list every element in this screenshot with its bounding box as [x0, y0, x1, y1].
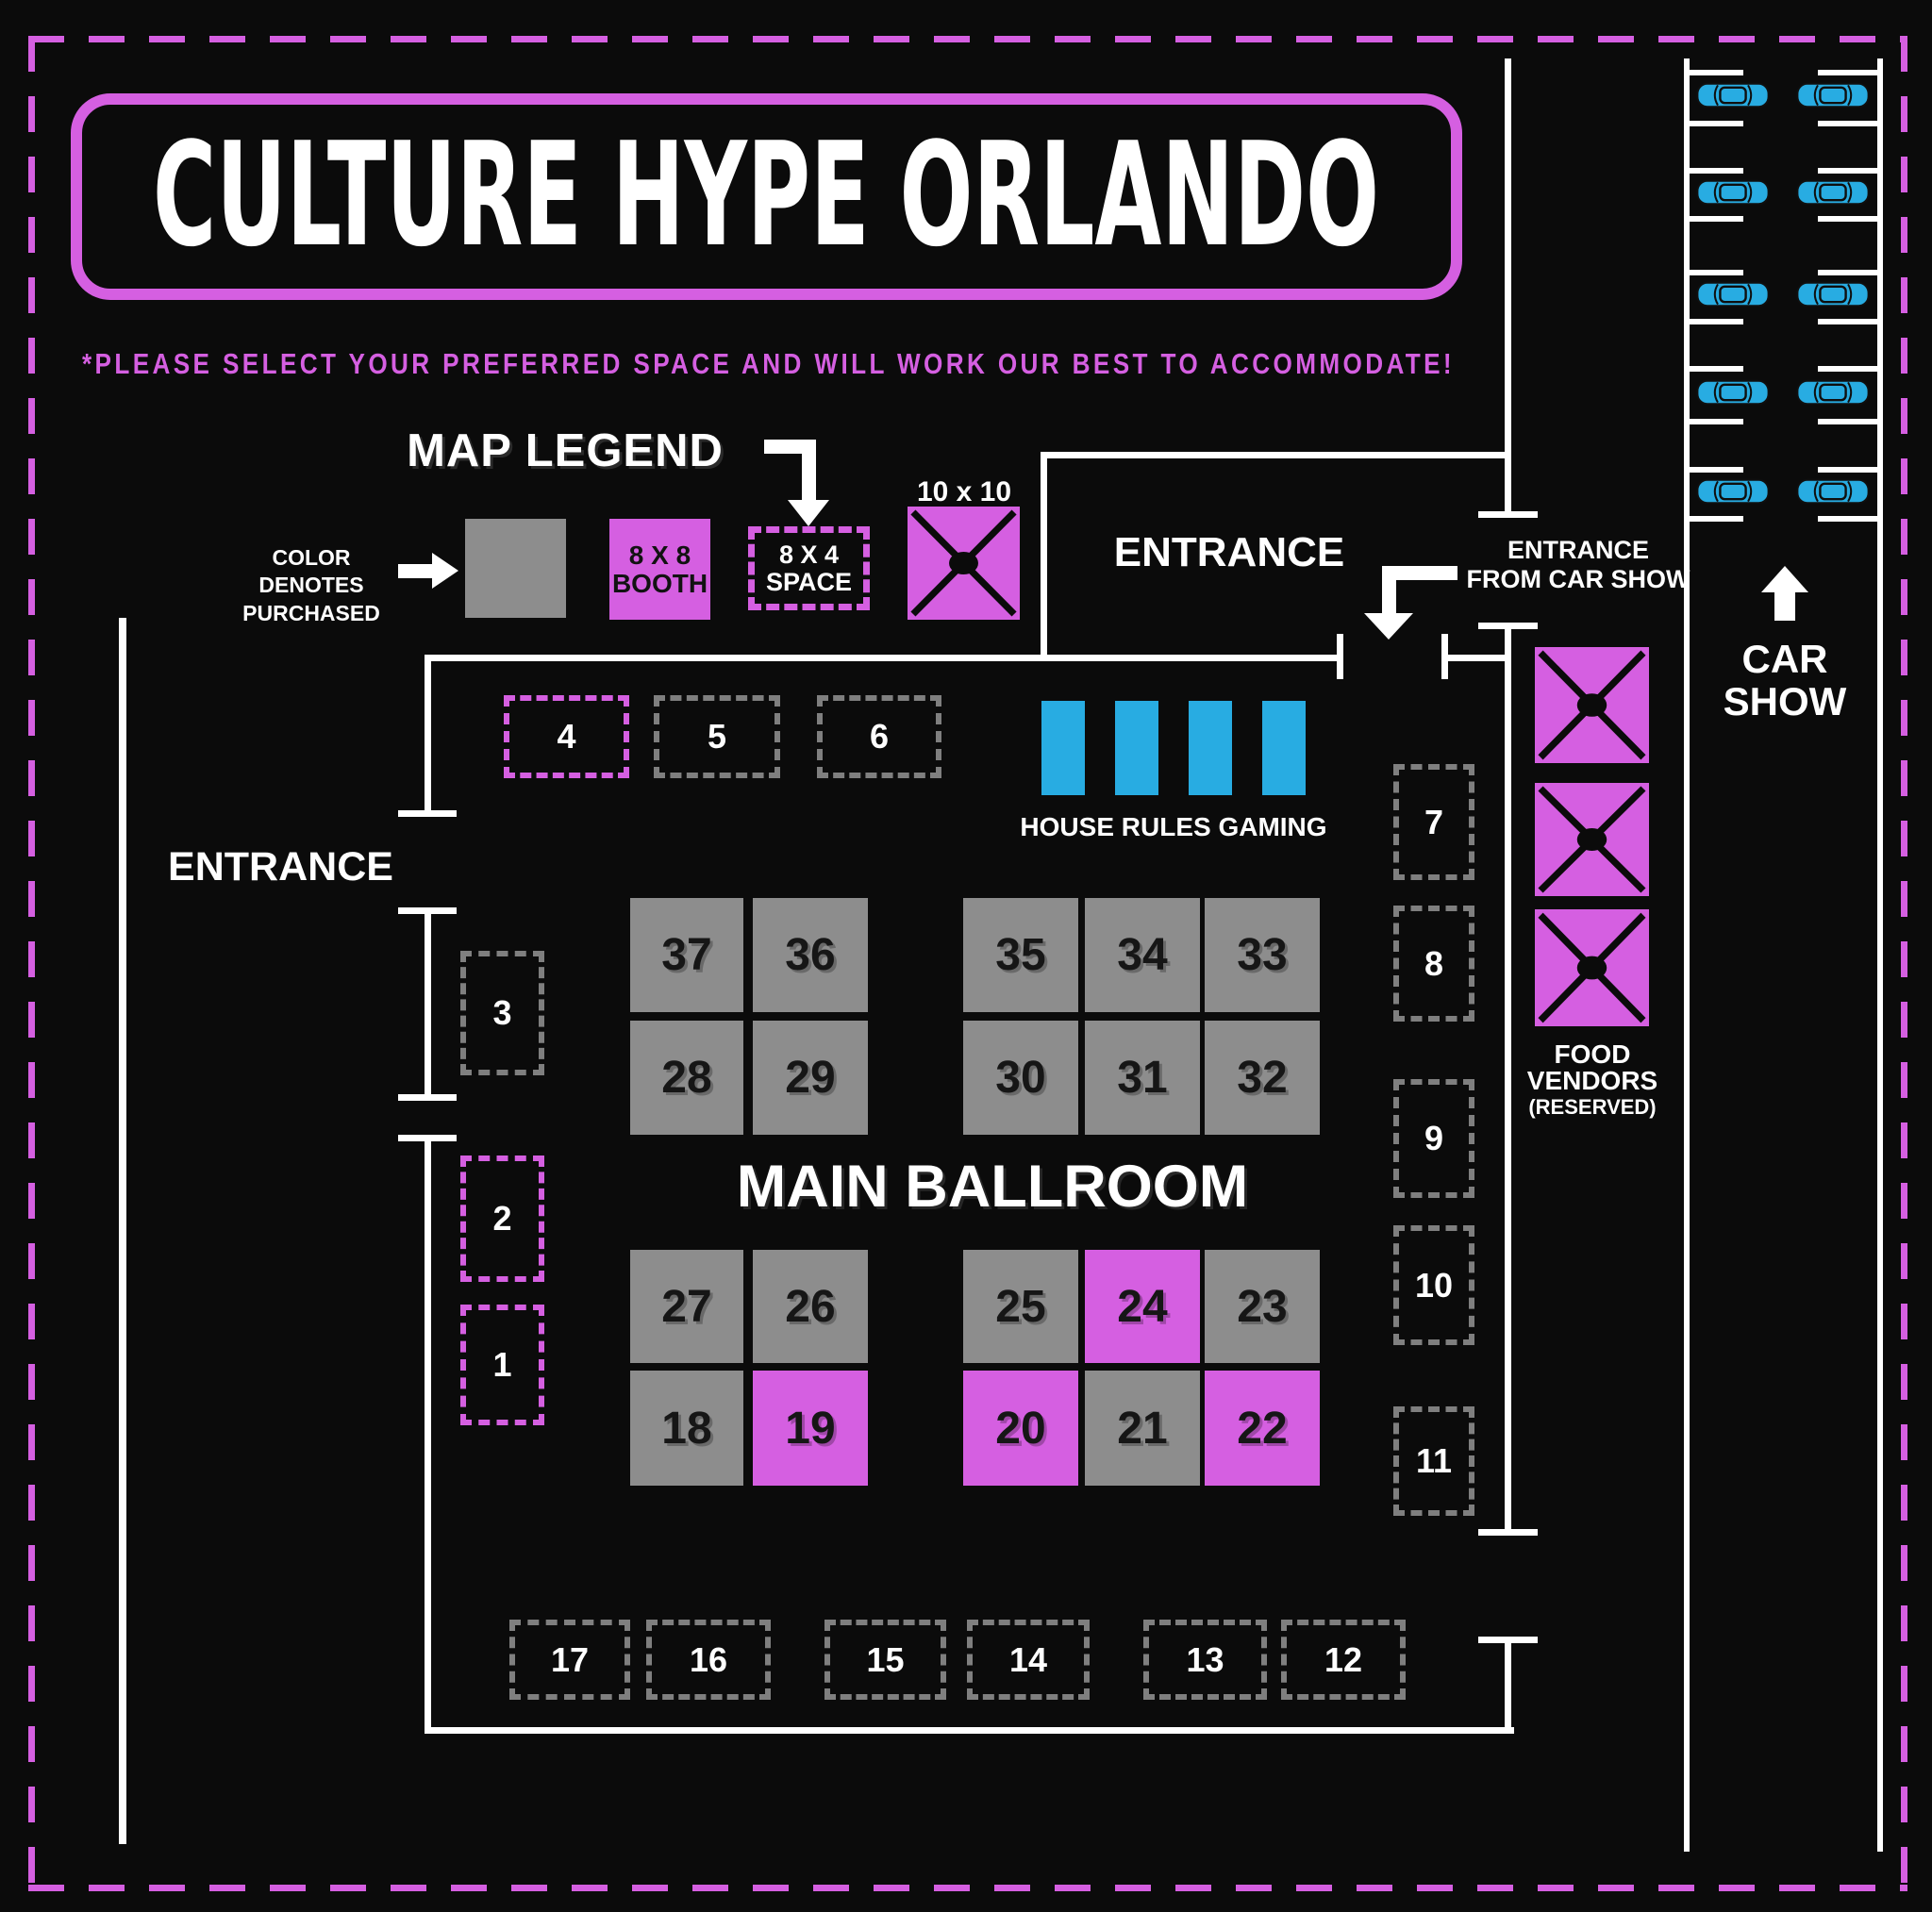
- booth-15[interactable]: 15: [824, 1620, 946, 1700]
- booth-2[interactable]: 2: [460, 1156, 544, 1282]
- legend-heading: MAP LEGEND: [381, 426, 749, 476]
- gaming-table-bar: [1189, 701, 1232, 795]
- booth-6[interactable]: 6: [817, 695, 941, 778]
- page-title: CULTURE HYPE ORLANDO: [153, 111, 1379, 278]
- parking-stall-line: [1818, 270, 1877, 275]
- food-vendors-reserved: (RESERVED): [1517, 1097, 1668, 1118]
- booth-label: 35: [995, 929, 1045, 981]
- legend-8x4-line1: 8 X 4: [779, 541, 839, 568]
- booth-14[interactable]: 14: [967, 1620, 1090, 1700]
- booth-18[interactable]: 18: [630, 1371, 743, 1486]
- booth-label: 17: [551, 1640, 589, 1680]
- booth-24[interactable]: 24: [1085, 1250, 1200, 1363]
- title-banner: CULTURE HYPE ORLANDO: [71, 93, 1462, 300]
- parking-stall-line: [1690, 121, 1743, 126]
- booth-12[interactable]: 12: [1281, 1620, 1406, 1700]
- booth-26[interactable]: 26: [753, 1250, 868, 1363]
- subtitle: *PLEASE SELECT YOUR PREFERRED SPACE AND …: [82, 347, 1455, 380]
- booth-label: 5: [708, 717, 726, 756]
- legend-10x10-label: 10 x 10: [898, 477, 1030, 507]
- legend-purchased-note-line1: COLOR DENOTES: [226, 544, 396, 600]
- booth-22[interactable]: 22: [1205, 1371, 1320, 1486]
- booth-label: 11: [1416, 1441, 1452, 1481]
- door-jamb: [1441, 634, 1448, 679]
- booth-label: 29: [785, 1052, 835, 1104]
- booth-35[interactable]: 35: [963, 898, 1078, 1012]
- room-left-wall-seg1: [425, 655, 431, 817]
- parking-stall-line: [1690, 516, 1743, 522]
- room-top-wall-right: [1446, 655, 1511, 661]
- booth-8[interactable]: 8: [1393, 906, 1474, 1022]
- legend-8x4-space-swatch: 8 X 4 SPACE: [748, 526, 870, 610]
- wall-cap: [1478, 623, 1538, 629]
- booth-label: 28: [661, 1052, 711, 1104]
- booth-label: 16: [690, 1640, 727, 1680]
- booth-9[interactable]: 9: [1393, 1079, 1474, 1198]
- booth-30[interactable]: 30: [963, 1021, 1078, 1135]
- entrance-hall-label: ENTRANCE: [1074, 530, 1385, 575]
- booth-label: 12: [1324, 1640, 1362, 1680]
- car-icon: [1795, 277, 1871, 311]
- gaming-table-bar: [1115, 701, 1158, 795]
- parking-right-wall: [1877, 58, 1883, 1852]
- booth-28[interactable]: 28: [630, 1021, 743, 1135]
- booth-label: 22: [1237, 1403, 1287, 1455]
- booth-20[interactable]: 20: [963, 1371, 1078, 1486]
- parking-stall-line: [1818, 516, 1877, 522]
- food-vendor-reserved-x-icon: [1535, 783, 1649, 896]
- legend-8x8-line1: 8 X 8: [629, 541, 691, 569]
- booth-21[interactable]: 21: [1085, 1371, 1200, 1486]
- house-rules-gaming-label: HOUSE RULES GAMING: [1004, 813, 1343, 841]
- booth-label: 26: [785, 1281, 835, 1333]
- parking-stall-line: [1818, 216, 1877, 222]
- booth-13[interactable]: 13: [1143, 1620, 1267, 1700]
- booth-1[interactable]: 1: [460, 1305, 544, 1425]
- booth-label: 32: [1237, 1052, 1287, 1104]
- entrance-from-car-show-line1: ENTRANCE: [1460, 536, 1696, 565]
- booth-label: 15: [866, 1640, 904, 1680]
- border-bottom: [28, 1885, 1907, 1891]
- booth-label: 33: [1237, 929, 1287, 981]
- booth-label: 34: [1117, 929, 1167, 981]
- legend-8x4-line2: SPACE: [766, 569, 852, 595]
- booth-31[interactable]: 31: [1085, 1021, 1200, 1135]
- food-vendor-reserved-x-icon: [1535, 909, 1649, 1026]
- booth-7[interactable]: 7: [1393, 764, 1474, 880]
- entrance-from-car-show-label: ENTRANCE FROM CAR SHOW: [1460, 536, 1696, 594]
- wall-cap: [398, 1135, 457, 1141]
- booth-3[interactable]: 3: [460, 951, 544, 1075]
- parking-stall-line: [1690, 216, 1743, 222]
- wall-cap: [1478, 511, 1538, 518]
- parking-stall-line: [1690, 419, 1743, 424]
- booth-label: 2: [492, 1199, 511, 1239]
- car-show-label: CAR SHOW: [1719, 638, 1851, 723]
- room-bottom-wall: [425, 1727, 1514, 1734]
- parking-stall-line: [1818, 366, 1877, 372]
- booth-label: 13: [1186, 1640, 1224, 1680]
- entrance-hall-left-wall: [1041, 452, 1047, 657]
- booth-27[interactable]: 27: [630, 1250, 743, 1363]
- booth-label: 10: [1415, 1266, 1453, 1305]
- booth-label: 3: [492, 993, 511, 1033]
- food-vendors-line1: FOOD: [1517, 1041, 1668, 1068]
- gaming-table-bar: [1041, 701, 1085, 795]
- corridor-wall-seg3: [1505, 1637, 1511, 1734]
- booth-16[interactable]: 16: [646, 1620, 771, 1700]
- booth-23[interactable]: 23: [1205, 1250, 1320, 1363]
- legend-10x10-x-icon: [908, 507, 1020, 620]
- booth-label: 21: [1117, 1403, 1167, 1455]
- booth-label: 6: [870, 717, 889, 756]
- booth-label: 37: [661, 929, 711, 981]
- floor-map: CULTURE HYPE ORLANDO *PLEASE SELECT YOUR…: [0, 0, 1932, 1912]
- booth-33[interactable]: 33: [1205, 898, 1320, 1012]
- booth-19[interactable]: 19: [753, 1371, 868, 1486]
- food-vendors-label: FOOD VENDORS (RESERVED): [1517, 1041, 1668, 1118]
- booth-label: 8: [1424, 944, 1443, 984]
- booth-5[interactable]: 5: [654, 695, 780, 778]
- legend-purchased-note: COLOR DENOTES PURCHASED: [226, 544, 396, 627]
- wall-cap: [398, 810, 457, 817]
- booth-34[interactable]: 34: [1085, 898, 1200, 1012]
- legend-8x8-booth-swatch: 8 X 8 BOOTH: [609, 519, 710, 620]
- border-top: [28, 36, 1907, 42]
- booth-label: 27: [661, 1281, 711, 1333]
- legend-purchased-note-line2: PURCHASED: [226, 600, 396, 627]
- car-icon: [1695, 474, 1771, 508]
- legend-purchased-swatch: [465, 519, 566, 618]
- room-left-wall-seg3: [425, 1135, 431, 1734]
- booth-label: 19: [785, 1403, 835, 1455]
- parking-stall-line: [1818, 121, 1877, 126]
- booth-label: 31: [1117, 1052, 1167, 1104]
- car-icon: [1695, 175, 1771, 209]
- booth-4[interactable]: 4: [504, 695, 629, 778]
- booth-32[interactable]: 32: [1205, 1021, 1320, 1135]
- parking-stall-line: [1818, 168, 1877, 174]
- booth-label: 1: [492, 1345, 511, 1385]
- car-icon: [1695, 277, 1771, 311]
- booth-37[interactable]: 37: [630, 898, 743, 1012]
- booth-label: 24: [1117, 1281, 1167, 1333]
- booth-label: 7: [1424, 803, 1443, 842]
- booth-label: 4: [557, 717, 575, 756]
- entrance-hall-top-wall: [1041, 452, 1511, 458]
- parking-left-wall: [1684, 58, 1690, 1852]
- car-show-line1: CAR: [1719, 638, 1851, 680]
- booth-label: 20: [995, 1403, 1045, 1455]
- outer-left-wall: [119, 618, 126, 1844]
- car-icon: [1795, 474, 1871, 508]
- parking-stall-line: [1818, 319, 1877, 324]
- booth-label: 23: [1237, 1281, 1287, 1333]
- parking-stall-line: [1818, 419, 1877, 424]
- door-jamb: [1337, 634, 1343, 679]
- parking-stall-line: [1690, 168, 1743, 174]
- parking-stall-line: [1690, 467, 1743, 473]
- booth-25[interactable]: 25: [963, 1250, 1078, 1363]
- car-show-line2: SHOW: [1719, 680, 1851, 723]
- main-ballroom-label: MAIN BALLROOM: [709, 1155, 1275, 1219]
- car-icon: [1695, 78, 1771, 112]
- room-top-wall: [425, 655, 1340, 661]
- parking-stall-line: [1690, 366, 1743, 372]
- parking-stall-line: [1690, 70, 1743, 75]
- wall-cap: [1478, 1637, 1538, 1643]
- wall-cap: [398, 907, 457, 914]
- legend-8x8-line2: BOOTH: [612, 570, 708, 597]
- car-icon: [1795, 78, 1871, 112]
- border-left: [28, 36, 35, 1891]
- booth-36[interactable]: 36: [753, 898, 868, 1012]
- parking-stall-line: [1818, 467, 1877, 473]
- room-left-wall-seg2: [425, 907, 431, 1101]
- booth-label: 9: [1424, 1119, 1443, 1158]
- car-icon: [1795, 175, 1871, 209]
- booth-17[interactable]: 17: [509, 1620, 630, 1700]
- corridor-wall-seg1: [1505, 58, 1511, 518]
- parking-stall-line: [1690, 319, 1743, 324]
- booth-label: 30: [995, 1052, 1045, 1104]
- food-vendor-reserved-x-icon: [1535, 647, 1649, 763]
- booth-10[interactable]: 10: [1393, 1225, 1474, 1345]
- border-right: [1901, 36, 1907, 1891]
- entrance-left-label: ENTRANCE: [160, 845, 401, 889]
- booth-29[interactable]: 29: [753, 1021, 868, 1135]
- booth-11[interactable]: 11: [1393, 1406, 1474, 1516]
- parking-stall-line: [1818, 70, 1877, 75]
- booth-label: 36: [785, 929, 835, 981]
- food-vendors-line2: VENDORS: [1517, 1068, 1668, 1094]
- booth-label: 14: [1009, 1640, 1047, 1680]
- parking-stall-line: [1690, 270, 1743, 275]
- wall-cap: [398, 1094, 457, 1101]
- gaming-table-bar: [1262, 701, 1306, 795]
- booth-label: 18: [661, 1403, 711, 1455]
- wall-cap: [1478, 1529, 1538, 1536]
- entrance-from-car-show-line2: FROM CAR SHOW: [1460, 565, 1696, 594]
- corridor-wall-seg2: [1505, 623, 1511, 1536]
- booth-label: 25: [995, 1281, 1045, 1333]
- car-icon: [1695, 375, 1771, 409]
- car-icon: [1795, 375, 1871, 409]
